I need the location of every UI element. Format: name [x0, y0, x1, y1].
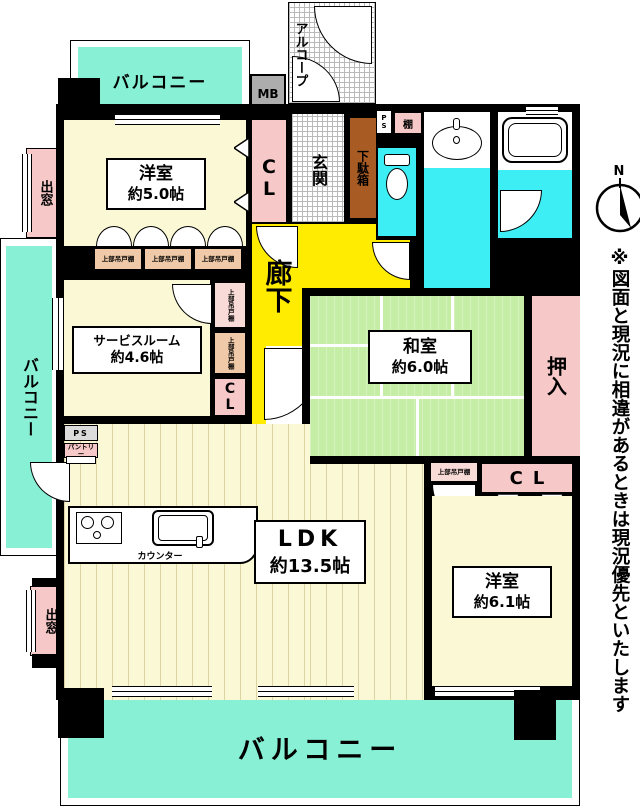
pipe-space-left: PS: [64, 425, 98, 441]
bathtub-icon-inner: [508, 123, 562, 157]
toilet-icon: [384, 154, 410, 166]
meter-box-label: MB: [257, 87, 278, 101]
western5-name: 洋室: [139, 163, 173, 185]
toilet-icon: [386, 168, 408, 200]
burner-icon: [81, 516, 94, 529]
upper-cupboard: 上部吊戸棚: [144, 248, 192, 270]
shelf-top: 棚: [394, 112, 422, 134]
window: [52, 298, 64, 370]
burner-icon: [101, 516, 114, 529]
ldk-size: 約13.5帖: [270, 555, 350, 578]
folding-door-icon: [234, 138, 249, 158]
oshiire-label: 押入: [542, 356, 571, 396]
balcony-left-label: バルコニー: [17, 357, 41, 437]
upper-cupboard-label: 上部吊戸棚: [102, 256, 135, 263]
room-label-western61: 洋室 約6.1帖: [452, 566, 552, 618]
folding-door-icon: [234, 192, 249, 212]
pipe-space-top: PS: [376, 110, 392, 134]
upper-cupboard-label: 上部吊戸棚: [227, 289, 234, 322]
entrance-label-wrap: 玄関: [300, 130, 336, 210]
closet-bottom-right: CL: [482, 464, 572, 492]
oshiire-closet: 押入: [532, 296, 580, 456]
upper-cupboard-label: 上部吊戸棚: [152, 256, 185, 263]
closet-top-label: CL: [258, 156, 280, 200]
pipe-space-left-label: PS: [73, 429, 89, 438]
western61-name: 洋室: [485, 571, 519, 593]
bay-window-top-glass: [22, 154, 32, 232]
wall-pillar: [514, 690, 556, 740]
counter-label-wrap: カウンター: [110, 548, 210, 562]
tatami-seam: [416, 399, 419, 456]
counter-label: カウンター: [137, 549, 182, 562]
corridor-label-wrap: 廊下: [256, 230, 296, 342]
service-size: 約4.6帖: [111, 349, 164, 367]
balcony-bottom-label: バルコニー: [238, 728, 402, 767]
faucet-icon: [453, 118, 460, 130]
drain-icon: [453, 136, 460, 144]
window: [115, 114, 220, 125]
shelf-top-label: 棚: [403, 116, 413, 131]
upper-cupboard: 上部吊戸棚: [94, 248, 142, 270]
disclaimer-text: ※図面と現況に相違があるときは現況優先といたします: [606, 248, 632, 713]
western5-size: 約5.0帖: [128, 185, 185, 205]
floor-plan: バルコニー バルコニー バルコニー アルコープ 出窓 出窓 MB 上部吊戸棚 上…: [0, 0, 640, 808]
kitchen-faucet-icon: [196, 536, 203, 548]
upper-cupboard: 上部吊戸棚: [214, 282, 246, 328]
upper-cupboard: 上部吊戸棚: [214, 332, 246, 374]
upper-cupboard: 上部吊戸棚: [194, 248, 242, 270]
closet-top: CL: [252, 120, 286, 236]
disclaimer-text-wrap: ※図面と現況に相違があるときは現況優先といたします: [602, 248, 636, 748]
upper-cupboard: 上部吊戸棚: [430, 462, 478, 482]
shoe-cabinet-label: 下駄箱: [355, 150, 372, 186]
balcony-bottom: バルコニー: [68, 696, 572, 798]
compass-icon: [592, 176, 640, 234]
room-label-western5: 洋室 約5.0帖: [106, 158, 206, 210]
balcony-door-leaf: [66, 456, 96, 464]
room-label-service: サービスルーム 約4.6帖: [72, 326, 202, 374]
upper-cupboard-label: 上部吊戸棚: [438, 469, 471, 476]
service-name: サービスルーム: [93, 333, 180, 349]
window: [258, 686, 354, 697]
balcony-top-label: バルコニー: [113, 68, 208, 93]
bay-window-top-label: 出窓: [36, 180, 55, 206]
room-label-japanese: 和室 約6.0帖: [368, 330, 472, 384]
pipe-space-top-label: PS: [380, 114, 388, 130]
closet-mid: CL: [214, 378, 246, 416]
balcony-left: バルコニー: [6, 246, 52, 548]
alcove-label-wrap: アルコープ: [290, 8, 310, 100]
ldk-name: LDK: [278, 526, 342, 555]
window: [112, 686, 212, 697]
burner-icon: [93, 531, 101, 539]
closet-mid-label: CL: [222, 381, 238, 413]
japanese-name: 和室: [403, 336, 437, 358]
shoe-cabinet-label-wrap: 下駄箱: [350, 122, 376, 214]
bathroom-window: [526, 106, 558, 115]
room-label-ldk: LDK 約13.5帖: [254, 520, 366, 584]
japanese-size: 約6.0帖: [392, 358, 449, 378]
closet-br-label: CL: [510, 468, 555, 489]
corridor-label: 廊下: [257, 259, 296, 313]
bay-window-top-label-wrap: 出窓: [32, 152, 58, 234]
bay-window-bottom-glass: [26, 590, 36, 652]
upper-cupboard-label: 上部吊戸棚: [202, 256, 235, 263]
upper-cupboard-label: 上部吊戸棚: [227, 337, 234, 370]
western61-size: 約6.1帖: [474, 593, 531, 613]
alcove-label: アルコープ: [291, 22, 310, 87]
entrance-label: 玄関: [306, 154, 330, 186]
wall-pillar: [58, 688, 104, 738]
